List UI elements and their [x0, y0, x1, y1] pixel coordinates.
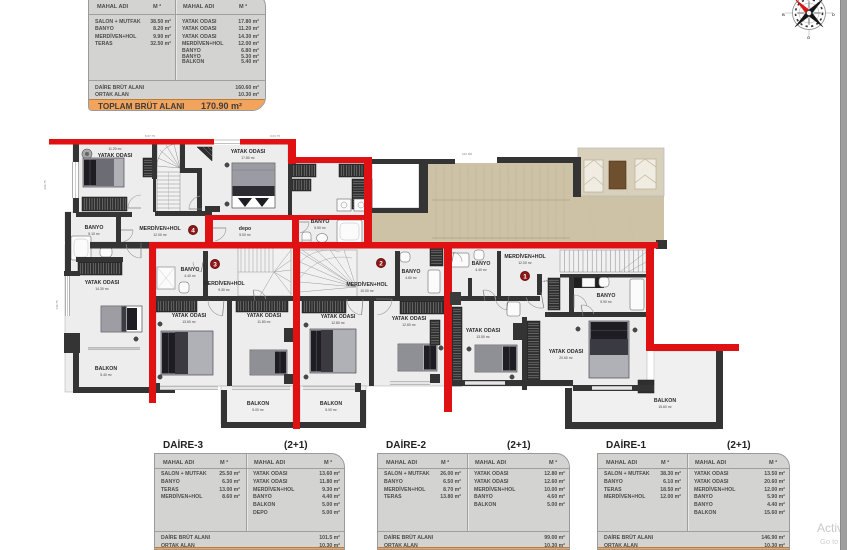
svg-text:11.80 m²: 11.80 m² [257, 320, 271, 324]
svg-text:4.40 m²: 4.40 m² [475, 268, 487, 272]
svg-text:5.10 m²: 5.10 m² [88, 232, 100, 236]
svg-text:5.00 m²: 5.00 m² [252, 408, 264, 412]
svg-text:YATAK ODASI: YATAK ODASI [172, 313, 207, 319]
svg-text:14.30 m²: 14.30 m² [95, 287, 109, 291]
svg-text:5.90 m²: 5.90 m² [600, 300, 612, 304]
svg-text:BANYO: BANYO [311, 219, 330, 225]
svg-text:12.80 m²: 12.80 m² [331, 321, 345, 325]
svg-text:240 M6: 240 M6 [462, 152, 472, 156]
svg-text:G: G [807, 35, 810, 40]
svg-text:D: D [832, 12, 835, 17]
svg-text:YATAK ODASI: YATAK ODASI [549, 349, 584, 355]
svg-text:BANYO: BANYO [402, 269, 421, 275]
svg-text:9.30 m²: 9.30 m² [218, 288, 230, 292]
svg-text:10.00 m²: 10.00 m² [360, 289, 374, 293]
svg-text:BANYO: BANYO [597, 293, 616, 299]
svg-text:12.60 m²: 12.60 m² [402, 323, 416, 327]
svg-text:BALKON: BALKON [95, 366, 117, 372]
svg-text:13.60 m²: 13.60 m² [182, 320, 196, 324]
svg-text:8.67.75: 8.67.75 [145, 134, 155, 138]
svg-text:4.60 m²: 4.60 m² [405, 276, 417, 280]
svg-text:5.50 m²: 5.50 m² [314, 226, 326, 230]
svg-text:17.80 m²: 17.80 m² [241, 156, 255, 160]
svg-text:YATAK ODASI: YATAK ODASI [321, 314, 356, 320]
svg-text:BANYO: BANYO [85, 225, 104, 231]
svg-text:YATAK ODASI: YATAK ODASI [247, 313, 282, 319]
svg-text:BALKON: BALKON [320, 401, 342, 407]
svg-text:+2.50/B.08: +2.50/B.08 [542, 279, 556, 283]
svg-text:B: B [782, 12, 785, 17]
svg-text:340.75: 340.75 [55, 300, 59, 310]
svg-text:4.40 m²: 4.40 m² [184, 274, 196, 278]
svg-text:1: 1 [523, 273, 527, 280]
svg-text:YATAK ODASI: YATAK ODASI [466, 328, 501, 334]
svg-text:depo: depo [239, 226, 251, 232]
svg-text:YATAK ODASI: YATAK ODASI [392, 316, 427, 322]
svg-text:YATAK ODASI: YATAK ODASI [85, 280, 120, 286]
svg-text:YATAK ODASI: YATAK ODASI [98, 153, 133, 159]
svg-text:11.20 m²: 11.20 m² [108, 147, 122, 151]
svg-text:BANYO: BANYO [181, 267, 200, 273]
svg-text:20.60 m²: 20.60 m² [559, 356, 573, 360]
svg-text:YATAK ODASI: YATAK ODASI [231, 149, 266, 155]
svg-text:15.60 m²: 15.60 m² [658, 405, 672, 409]
svg-text:MERDİVEN+HOL: MERDİVEN+HOL [346, 281, 388, 288]
svg-text:13.50 m²: 13.50 m² [476, 335, 490, 339]
svg-text:5.40 m²: 5.40 m² [100, 373, 112, 377]
svg-text:2: 2 [379, 260, 383, 267]
svg-text:296.75: 296.75 [43, 180, 47, 190]
svg-text:9.00.75: 9.00.75 [270, 134, 280, 138]
svg-text:12.00 m²: 12.00 m² [518, 261, 532, 265]
svg-text:MERDİVEN+HOL: MERDİVEN+HOL [203, 280, 245, 287]
svg-text:12.00 m²: 12.00 m² [153, 233, 167, 237]
svg-text:4: 4 [191, 227, 195, 234]
svg-text:MERDİVEN+HOL: MERDİVEN+HOL [139, 225, 181, 232]
svg-text:BALKON: BALKON [654, 398, 676, 404]
svg-text:3: 3 [213, 261, 217, 268]
svg-text:5.00 m²: 5.00 m² [239, 233, 251, 237]
svg-text:BALKON: BALKON [247, 401, 269, 407]
svg-text:MERDİVEN+HOL: MERDİVEN+HOL [504, 253, 546, 260]
svg-text:BANYO: BANYO [472, 261, 491, 267]
svg-text:5.00 m²: 5.00 m² [325, 408, 337, 412]
